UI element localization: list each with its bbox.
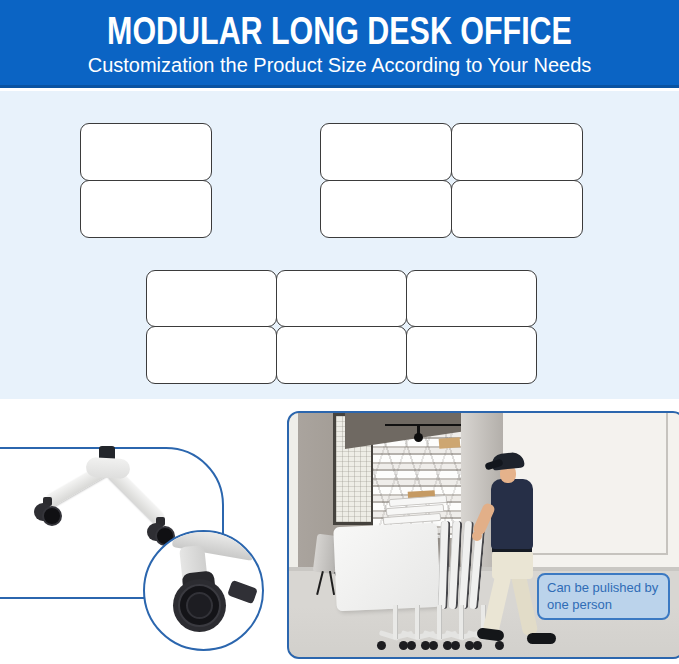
worker-hand <box>472 531 482 541</box>
desk-top <box>80 123 212 181</box>
closeup-brake-lever <box>227 580 258 604</box>
caster-closeup-circle <box>143 530 264 651</box>
track-light-fixture <box>417 426 420 434</box>
desk-top <box>406 270 537 328</box>
leg-hub <box>86 457 131 479</box>
caster-wheel-front <box>42 506 62 526</box>
worker-polo-shirt <box>491 479 533 549</box>
wood-accent-panel <box>439 437 461 448</box>
desk-top <box>146 326 277 384</box>
window-light-strip <box>289 413 298 583</box>
desk-top <box>451 180 583 238</box>
folded-tabletop-face <box>333 523 441 611</box>
track-light-rail <box>385 424 461 426</box>
desk-top <box>80 180 212 238</box>
callout-label: Can be pulished by one person <box>537 573 670 620</box>
desk-layouts-section <box>0 91 679 399</box>
worker-pushing-tables <box>491 453 561 653</box>
two-desk-layout <box>80 123 211 237</box>
desk-top <box>276 326 407 384</box>
desk-top <box>406 326 537 384</box>
desk-top <box>320 123 452 181</box>
caster-wheel-left-icon <box>32 497 64 529</box>
four-desk-layout <box>320 123 582 237</box>
desk-top <box>451 123 583 181</box>
photo-panel: Can be pulished by one person <box>287 411 679 659</box>
desk-top <box>276 270 407 328</box>
closeup-caster-wheel-icon <box>173 579 226 632</box>
header-banner: MODULAR LONG DESK OFFICE Customization t… <box>0 0 679 88</box>
worker-pants <box>492 551 533 579</box>
desk-top <box>320 180 452 238</box>
worker-rear-leg <box>511 572 539 636</box>
desk-top <box>146 270 277 328</box>
product-infographic: { "header": { "title": "MODULAR LONG DES… <box>0 0 679 664</box>
six-desk-layout <box>146 270 537 383</box>
product-title: MODULAR LONG DESK OFFICE <box>75 9 605 53</box>
worker-rear-shoe <box>527 633 556 644</box>
product-subtitle: Customization the Product Size According… <box>0 54 679 77</box>
